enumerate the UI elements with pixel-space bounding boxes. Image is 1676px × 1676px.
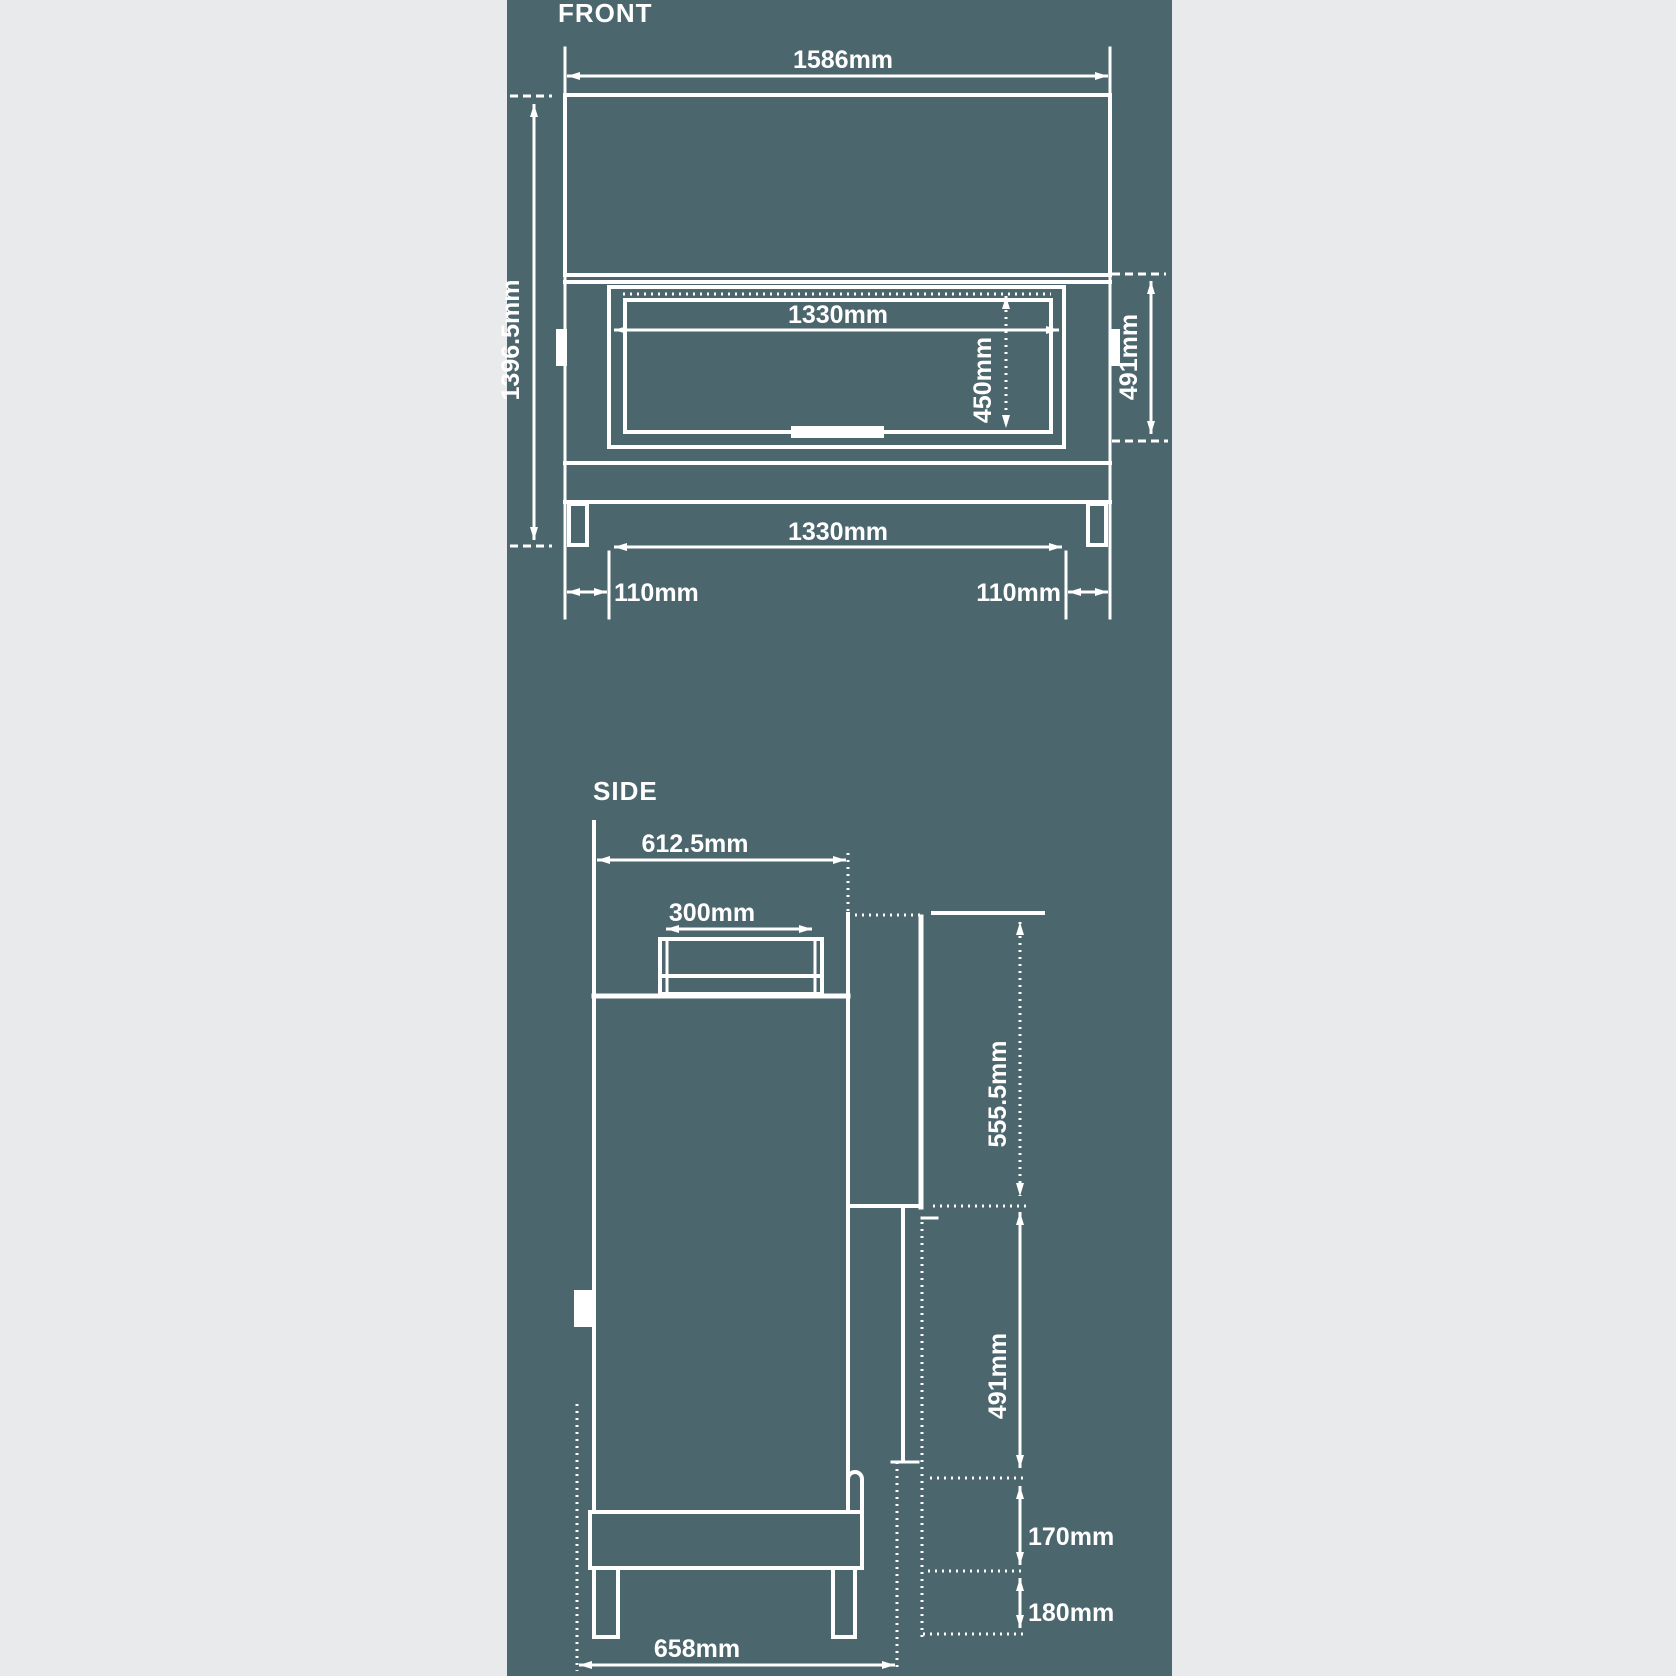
dim-label: 1586mm bbox=[793, 46, 893, 74]
dim-label: 180mm bbox=[1028, 1599, 1114, 1627]
front-burner-strip bbox=[791, 426, 884, 438]
dim-label: 300mm bbox=[669, 899, 755, 927]
dim-label: 450mm bbox=[969, 337, 997, 423]
front-left-bracket-tab bbox=[556, 329, 567, 366]
side-view-title: SIDE bbox=[593, 776, 658, 806]
page: FRONT 1586mm 1330mm 450mm bbox=[0, 0, 1676, 1676]
side-front-bracket-tab bbox=[574, 1290, 594, 1327]
dim-label: 1330mm bbox=[788, 301, 888, 329]
dim-label: 491mm bbox=[984, 1333, 1012, 1419]
front-view-title: FRONT bbox=[558, 0, 653, 28]
drawing-panel bbox=[507, 0, 1172, 1676]
dim-label: 110mm bbox=[614, 579, 699, 607]
dim-label: 612.5mm bbox=[641, 830, 748, 858]
dim-label: 1330mm bbox=[788, 518, 888, 546]
dim-label: 491mm bbox=[1115, 314, 1143, 400]
technical-drawing: FRONT 1586mm 1330mm 450mm bbox=[0, 0, 1676, 1676]
dim-label: 110mm bbox=[976, 579, 1061, 607]
dim-label: 170mm bbox=[1028, 1523, 1114, 1551]
dim-label: 658mm bbox=[654, 1635, 740, 1663]
dim-label: 555.5mm bbox=[984, 1040, 1012, 1147]
dim-label: 1396.5mm bbox=[497, 280, 525, 401]
